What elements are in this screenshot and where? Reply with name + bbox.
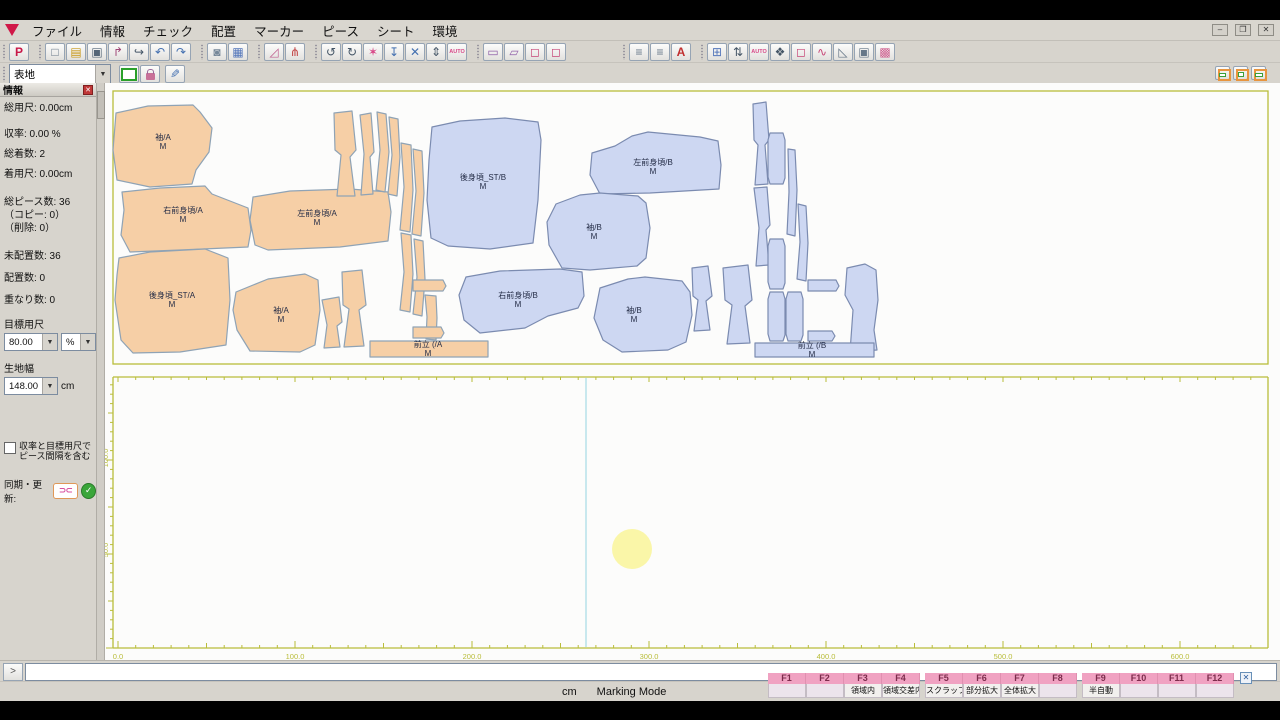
fkey-label[interactable]: 領域内 (844, 684, 882, 698)
layer-lock-button[interactable] (140, 65, 160, 83)
undo-icon: ↶ (155, 46, 165, 58)
pattern-piece-band-B4[interactable] (786, 292, 803, 341)
fabric-width-label: 生地幅 (4, 364, 96, 376)
piece-label: 袖/A (273, 305, 289, 315)
pattern-piece-cuff-A2[interactable] (322, 297, 342, 348)
fkey-F2[interactable]: F2 (806, 673, 844, 698)
restore-button[interactable]: ❐ (1235, 24, 1251, 36)
menu-ピース[interactable]: ピース (313, 19, 368, 42)
toolbar-grip[interactable] (622, 44, 626, 60)
info-stat: 重なり数: 0 (4, 295, 96, 307)
pattern-piece-collar-B[interactable] (845, 264, 878, 352)
fkey-header: F11 (1158, 673, 1196, 684)
pattern-piece-tag-B1[interactable] (808, 280, 839, 291)
fkey-label[interactable] (806, 684, 844, 698)
fit-vertical-icon: ⇕ (431, 46, 441, 58)
toolbar-grip[interactable] (200, 44, 204, 60)
label-a-button[interactable]: A (671, 43, 691, 61)
toolbar-grip[interactable] (2, 66, 6, 82)
annotation-button[interactable]: ▭ (483, 43, 503, 61)
marker-grid-button[interactable]: ⊞ (707, 43, 727, 61)
ink-stamp-icon: ❖ (775, 46, 786, 58)
pattern-piece-strip-A7[interactable] (400, 233, 413, 312)
target-length-select[interactable]: 80.00 ▼ (4, 333, 58, 351)
app-frame: ファイル情報チェック配置マーカーピースシート環境 –❐✕ P□▤▣↱↪↶↷◙▦◿… (0, 20, 1280, 701)
redo-button[interactable]: ↷ (171, 43, 191, 61)
pattern-piece-band-B1[interactable] (768, 133, 785, 184)
lock-button[interactable]: ◙ (207, 43, 227, 61)
measure-angle-button[interactable]: ◿ (264, 43, 284, 61)
save-window-button[interactable]: ▣ (854, 43, 874, 61)
info-stat: 総ピース数: 36 (4, 197, 96, 209)
piece-size-label: M (591, 232, 598, 241)
include-gap-label: 収率と目標用尺でピース間隔を含む (19, 441, 95, 461)
target-unit-select[interactable]: % ▼ (61, 333, 96, 351)
curve-tool-button[interactable]: ∿ (812, 43, 832, 61)
info-stats: 総用尺: 0.00cm収率: 0.00 %総着数: 2着用尺: 0.00cm総ピ… (4, 103, 96, 307)
sync-update-label: 同期・更新: (4, 477, 50, 505)
plot-icon: P (15, 46, 23, 58)
window-controls: –❐✕ (1212, 24, 1280, 36)
edit-point-button[interactable]: ✎ (165, 65, 185, 83)
application-window: ファイル情報チェック配置マーカーピースシート環境 –❐✕ P□▤▣↱↪↶↷◙▦◿… (0, 0, 1280, 720)
fkey-group: F5スクラップ移動F6部分拡大F7全体拡大F8 (925, 673, 1077, 698)
overlap-check-button[interactable]: ✕ (405, 43, 425, 61)
fkey-F3[interactable]: F3領域内 (844, 673, 882, 698)
piece-label: 後身頃_ST/B (460, 172, 506, 182)
fkey-F6[interactable]: F6部分拡大 (963, 673, 1001, 698)
main-toolbar: P□▤▣↱↪↶↷◙▦◿⋔↺↻✶↧✕⇕AUTO▭▱◻◻≡≡A⊞⇅AUTO❖◻∿◺▣… (0, 41, 1280, 63)
piece-size-label: M (278, 315, 285, 324)
close-icon[interactable]: ✕ (83, 85, 93, 95)
chevron-down-icon[interactable]: ▼ (80, 334, 95, 350)
fkey-header: F3 (844, 673, 882, 684)
cascade-icon (1254, 69, 1267, 81)
menu-ファイル[interactable]: ファイル (23, 19, 91, 42)
pick-piece-button[interactable]: ↱ (108, 43, 128, 61)
pattern-piece-tag-A2[interactable] (413, 327, 444, 338)
fkey-header: F7 (1001, 673, 1039, 684)
spec-list-icon: ≡ (635, 46, 642, 58)
function-key-panel: F1F2F3領域内F4領域交差内F5スクラップ移動F6部分拡大F7全体拡大F8F… (768, 673, 1234, 698)
corner-tool-icon: ◺ (838, 46, 847, 58)
toolbar-group: P (2, 43, 30, 61)
mode-indicator: Marking Mode (597, 686, 667, 698)
annotation-icon: ▭ (487, 46, 498, 58)
info-stat: 総用尺: 0.00cm (4, 103, 96, 115)
info-stat: 着用尺: 0.00cm (4, 169, 96, 181)
fabric-pattern-icon: ▩ (879, 46, 890, 58)
auto-nest-icon: AUTO (449, 46, 464, 58)
rotate-right-icon: ↻ (347, 46, 357, 58)
pattern-piece-cuff-B2[interactable] (723, 265, 752, 344)
toolbar-group: ↺↻✶↧✕⇕AUTO (314, 43, 468, 61)
open-file-icon: ▤ (70, 46, 81, 58)
fkey-close-icon[interactable]: ✕ (1240, 672, 1252, 684)
fkey-F9[interactable]: F9半自動 (1082, 673, 1120, 698)
annotation-flag-button[interactable]: ▱ (504, 43, 524, 61)
tools-wrench-button[interactable]: ⋔ (285, 43, 305, 61)
toolbar-grip[interactable] (476, 44, 480, 60)
rotate-right-button[interactable]: ↻ (342, 43, 362, 61)
fkey-label[interactable] (1158, 684, 1196, 698)
marker-canvas[interactable]: 0.0100.0200.0300.0400.0500.0600.0100.050… (105, 83, 1280, 661)
fkey-header: F8 (1039, 673, 1077, 684)
undo-button[interactable]: ↶ (150, 43, 170, 61)
info-panel-title: 情報 (3, 82, 23, 97)
pattern-piece-strip-A1[interactable] (334, 111, 356, 196)
fkey-F5[interactable]: F5スクラップ移動 (925, 673, 963, 698)
fkey-F10[interactable]: F10 (1120, 673, 1158, 698)
pattern-piece-band-B3[interactable] (768, 292, 785, 341)
pattern-piece-right-front-B[interactable] (459, 269, 584, 333)
piece-front-icon: ◻ (530, 46, 540, 58)
fkey-F7[interactable]: F7全体拡大 (1001, 673, 1039, 698)
bottom-black-bar (0, 701, 1280, 720)
pattern-piece-strip-B3[interactable] (787, 149, 797, 236)
fabric-area-button[interactable] (119, 65, 139, 83)
fkey-header: F2 (806, 673, 844, 684)
piece-size-label: M (314, 218, 321, 227)
chevron-down-icon[interactable]: ▼ (95, 65, 110, 83)
pattern-piece-tag-B2[interactable] (808, 331, 835, 341)
piece-size-label: M (425, 349, 432, 358)
toolbar-grip[interactable] (314, 44, 318, 60)
piece-back-icon: ◻ (551, 46, 561, 58)
label-a-icon: A (677, 46, 686, 58)
minimize-button[interactable]: – (1212, 24, 1228, 36)
target-length-label: 目標用尺 (4, 320, 96, 332)
fabric-width-select[interactable]: 148.00 ▼ (4, 377, 58, 395)
pattern-piece-tag-A1[interactable] (413, 280, 446, 291)
plot-button[interactable]: P (9, 43, 29, 61)
new-file-button[interactable]: □ (45, 43, 65, 61)
fkey-label[interactable]: スクラップ移動 (925, 684, 963, 698)
save-window-icon: ▣ (858, 46, 869, 58)
width-fit-icon: ⇅ (733, 46, 743, 58)
piece-size-label: M (160, 142, 167, 151)
pattern-piece-strip-B4[interactable] (797, 204, 808, 281)
piece-size-label: M (480, 182, 487, 191)
fkey-label[interactable]: 領域交差内 (882, 684, 920, 698)
fkey-label[interactable] (768, 684, 806, 698)
info-stat: （コピー: 0） (4, 210, 96, 222)
menu-配置[interactable]: 配置 (202, 19, 245, 42)
piece-label: 左前身頃/A (297, 208, 337, 218)
fkey-label[interactable] (1039, 684, 1077, 698)
menu-bar: ファイル情報チェック配置マーカーピースシート環境 –❐✕ (0, 20, 1280, 41)
pattern-piece-cuff-A1[interactable] (342, 270, 366, 347)
pattern-piece-band-B2[interactable] (768, 239, 785, 289)
cascade-button[interactable] (1251, 66, 1266, 80)
pick-piece-icon: ↱ (113, 46, 123, 58)
save-file-icon: ▣ (91, 46, 102, 58)
fkey-label[interactable] (1120, 684, 1158, 698)
fkey-F1[interactable]: F1 (768, 673, 806, 698)
flash-check-icon: ✶ (368, 46, 378, 58)
tile-horizontal-button[interactable] (1215, 66, 1230, 80)
measure-angle-icon: ◿ (269, 46, 278, 58)
save-file-button[interactable]: ▣ (87, 43, 107, 61)
toolbar-group: ◙▦ (200, 43, 249, 61)
piece-label: 右前身頃/B (498, 290, 538, 300)
pattern-piece-left-front-A[interactable] (250, 189, 391, 250)
fkey-header: F5 (925, 673, 963, 684)
pattern-piece-strip-A8[interactable] (413, 239, 425, 316)
new-file-icon: □ (51, 46, 58, 58)
fabric-select[interactable]: 表地 ▼ (9, 64, 111, 84)
tools-wrench-icon: ⋔ (290, 46, 300, 58)
lock-icon (146, 73, 155, 80)
piece-label: 袖/B (586, 222, 602, 232)
include-gap-checkbox[interactable] (4, 442, 16, 454)
fabric-pattern-button[interactable]: ▩ (875, 43, 895, 61)
toolbar-grip[interactable] (700, 44, 704, 60)
fkey-header: F9 (1082, 673, 1120, 684)
sync-ok-icon[interactable]: ✓ (81, 483, 96, 499)
piece-label: 後身頃_ST/A (149, 290, 196, 300)
fkey-label[interactable]: 全体拡大 (1001, 684, 1039, 698)
auto-marking-button[interactable]: AUTO (749, 43, 769, 61)
piece-outline-button[interactable]: ◻ (791, 43, 811, 61)
toolbar-group: ◿⋔ (257, 43, 306, 61)
piece-table-button[interactable]: ▦ (228, 43, 248, 61)
menu-情報[interactable]: 情報 (91, 19, 134, 42)
piece-outline-icon: ◻ (796, 46, 806, 58)
order-list-icon: ≡ (656, 46, 663, 58)
fit-vertical-button[interactable]: ⇕ (426, 43, 446, 61)
pattern-piece-strip-A2[interactable] (360, 113, 374, 195)
fkey-header: F1 (768, 673, 806, 684)
rotate-left-icon: ↺ (326, 46, 336, 58)
auto-nest-button[interactable]: AUTO (447, 43, 467, 61)
piece-front-button[interactable]: ◻ (525, 43, 545, 61)
toolbar-group: □▤▣↱↪↶↷ (38, 43, 192, 61)
app-logo-icon (5, 24, 19, 36)
auto-marking-icon: AUTO (751, 46, 766, 58)
info-stat: 配置数: 0 (4, 273, 96, 285)
menu-items: ファイル情報チェック配置マーカーピースシート環境 (23, 19, 467, 42)
arrange-buttons (1215, 66, 1266, 80)
piece-label: 左前身頃/B (633, 157, 673, 167)
fkey-F8[interactable]: F8 (1039, 673, 1077, 698)
info-stat: 総着数: 2 (4, 149, 96, 161)
info-stat: 未配置数: 36 (4, 251, 96, 263)
piece-table-icon: ▦ (232, 46, 243, 58)
lock-icon: ◙ (213, 46, 220, 58)
toolbar-grip[interactable] (257, 44, 261, 60)
fkey-header: F4 (882, 673, 920, 684)
pattern-piece-sleeve-B-2[interactable] (594, 277, 692, 352)
piece-size-label: M (515, 300, 522, 309)
fkey-group: F9半自動F10F11F12 (1082, 673, 1234, 698)
nesting-scene[interactable]: 0.0100.0200.0300.0400.0500.0600.0100.050… (105, 83, 1280, 661)
pencil-icon: ✎ (170, 68, 180, 80)
annotation-flag-icon: ▱ (509, 46, 518, 58)
v-ruler-label: 100.0 (105, 449, 110, 468)
toolbar-grip[interactable] (38, 44, 42, 60)
fkey-header: F10 (1120, 673, 1158, 684)
pattern-piece-strip-A3[interactable] (376, 112, 389, 192)
toolbar-grip[interactable] (2, 44, 6, 60)
ink-stamp-button[interactable]: ❖ (770, 43, 790, 61)
pattern-piece-strip-A5[interactable] (400, 143, 413, 232)
fkey-F11[interactable]: F11 (1158, 673, 1196, 698)
cursor-highlight (612, 529, 652, 569)
fabric-width-value: 148.00 (5, 381, 42, 392)
pattern-piece-strip-A6[interactable] (412, 149, 424, 236)
piece-size-label: M (631, 315, 638, 324)
drop-piece-icon: ↧ (389, 46, 399, 58)
redo-icon: ↷ (176, 46, 186, 58)
fabric-width-unit: cm (61, 381, 74, 392)
pattern-piece-strip-B1[interactable] (753, 102, 769, 185)
toolbar-group: ⊞⇅AUTO❖◻∿◺▣▩ (700, 43, 896, 61)
fkey-header: F12 (1196, 673, 1234, 684)
fkey-label[interactable]: 部分拡大 (963, 684, 1001, 698)
v-ruler-label: 50.0 (105, 543, 110, 558)
scrollbar-thumb[interactable] (97, 91, 105, 119)
top-black-bar (0, 0, 1280, 20)
menu-環境[interactable]: 環境 (423, 19, 466, 42)
corner-tool-button[interactable]: ◺ (833, 43, 853, 61)
fkey-header: F6 (963, 673, 1001, 684)
tile-vertical-button[interactable] (1233, 66, 1248, 80)
tile-vertical-icon (1236, 69, 1249, 81)
piece-size-label: M (809, 350, 816, 359)
piece-label: 袖/A (155, 132, 171, 142)
info-panel-title-bar: 情報 ✕ (0, 83, 96, 97)
close-button[interactable]: ✕ (1258, 24, 1274, 36)
toolbar-group: ▭▱◻◻ (476, 43, 567, 61)
pan-tool-icon: ↪ (134, 46, 144, 58)
target-unit-value: % (62, 337, 80, 348)
fkey-group: F1F2F3領域内F4領域交差内 (768, 673, 920, 698)
piece-label: 前立 (/A (414, 339, 443, 349)
menu-シート[interactable]: シート (368, 19, 424, 42)
spec-list-button[interactable]: ≡ (629, 43, 649, 61)
width-fit-button[interactable]: ⇅ (728, 43, 748, 61)
workspace: 情報 ✕ 総用尺: 0.00cm収率: 0.00 %総着数: 2着用尺: 0.0… (0, 83, 1280, 661)
piece-back-button[interactable]: ◻ (546, 43, 566, 61)
drop-piece-button[interactable]: ↧ (384, 43, 404, 61)
pan-tool-button[interactable]: ↪ (129, 43, 149, 61)
target-length-value: 80.00 (5, 337, 42, 348)
pattern-piece-cuff-B1[interactable] (692, 266, 712, 331)
fkey-label[interactable] (1196, 684, 1234, 698)
piece-size-label: M (169, 300, 176, 309)
pattern-piece-strip-A4[interactable] (388, 117, 400, 196)
piece-size-label: M (180, 215, 187, 224)
info-stat: （削除: 0） (4, 223, 96, 235)
tile-horizontal-icon (1218, 69, 1231, 81)
fabric-frame-icon (121, 68, 137, 81)
flash-check-button[interactable]: ✶ (363, 43, 383, 61)
rotate-left-button[interactable]: ↺ (321, 43, 341, 61)
open-file-button[interactable]: ▤ (66, 43, 86, 61)
menu-マーカー[interactable]: マーカー (245, 19, 313, 42)
piece-label: 前立 (/B (798, 340, 826, 350)
chevron-down-icon[interactable]: ▼ (42, 378, 57, 394)
marker-grid-icon: ⊞ (712, 46, 722, 58)
piece-label: 右前身頃/A (163, 205, 203, 215)
menu-チェック[interactable]: チェック (134, 19, 202, 42)
fabric-select-value: 表地 (10, 67, 95, 82)
piece-size-label: M (650, 167, 657, 176)
curve-tool-icon: ∿ (817, 46, 827, 58)
unit-indicator: cm (562, 686, 577, 698)
sync-pieces-icon[interactable]: ⊃⊂ (53, 483, 79, 499)
fkey-F12[interactable]: F12 (1196, 673, 1234, 698)
piece-label: 袖/B (626, 305, 642, 315)
overlap-check-icon: ✕ (410, 46, 420, 58)
order-list-button[interactable]: ≡ (650, 43, 670, 61)
sidebar-scrollbar[interactable] (97, 83, 105, 661)
info-panel: 情報 ✕ 総用尺: 0.00cm収率: 0.00 %総着数: 2着用尺: 0.0… (0, 83, 97, 661)
fkey-label[interactable]: 半自動 (1082, 684, 1120, 698)
prompt-button[interactable]: > (3, 663, 23, 681)
toolbar-group: ≡≡A (622, 43, 692, 61)
chevron-down-icon[interactable]: ▼ (42, 334, 57, 350)
fkey-F4[interactable]: F4領域交差内 (882, 673, 920, 698)
info-stat: 収率: 0.00 % (4, 129, 96, 141)
